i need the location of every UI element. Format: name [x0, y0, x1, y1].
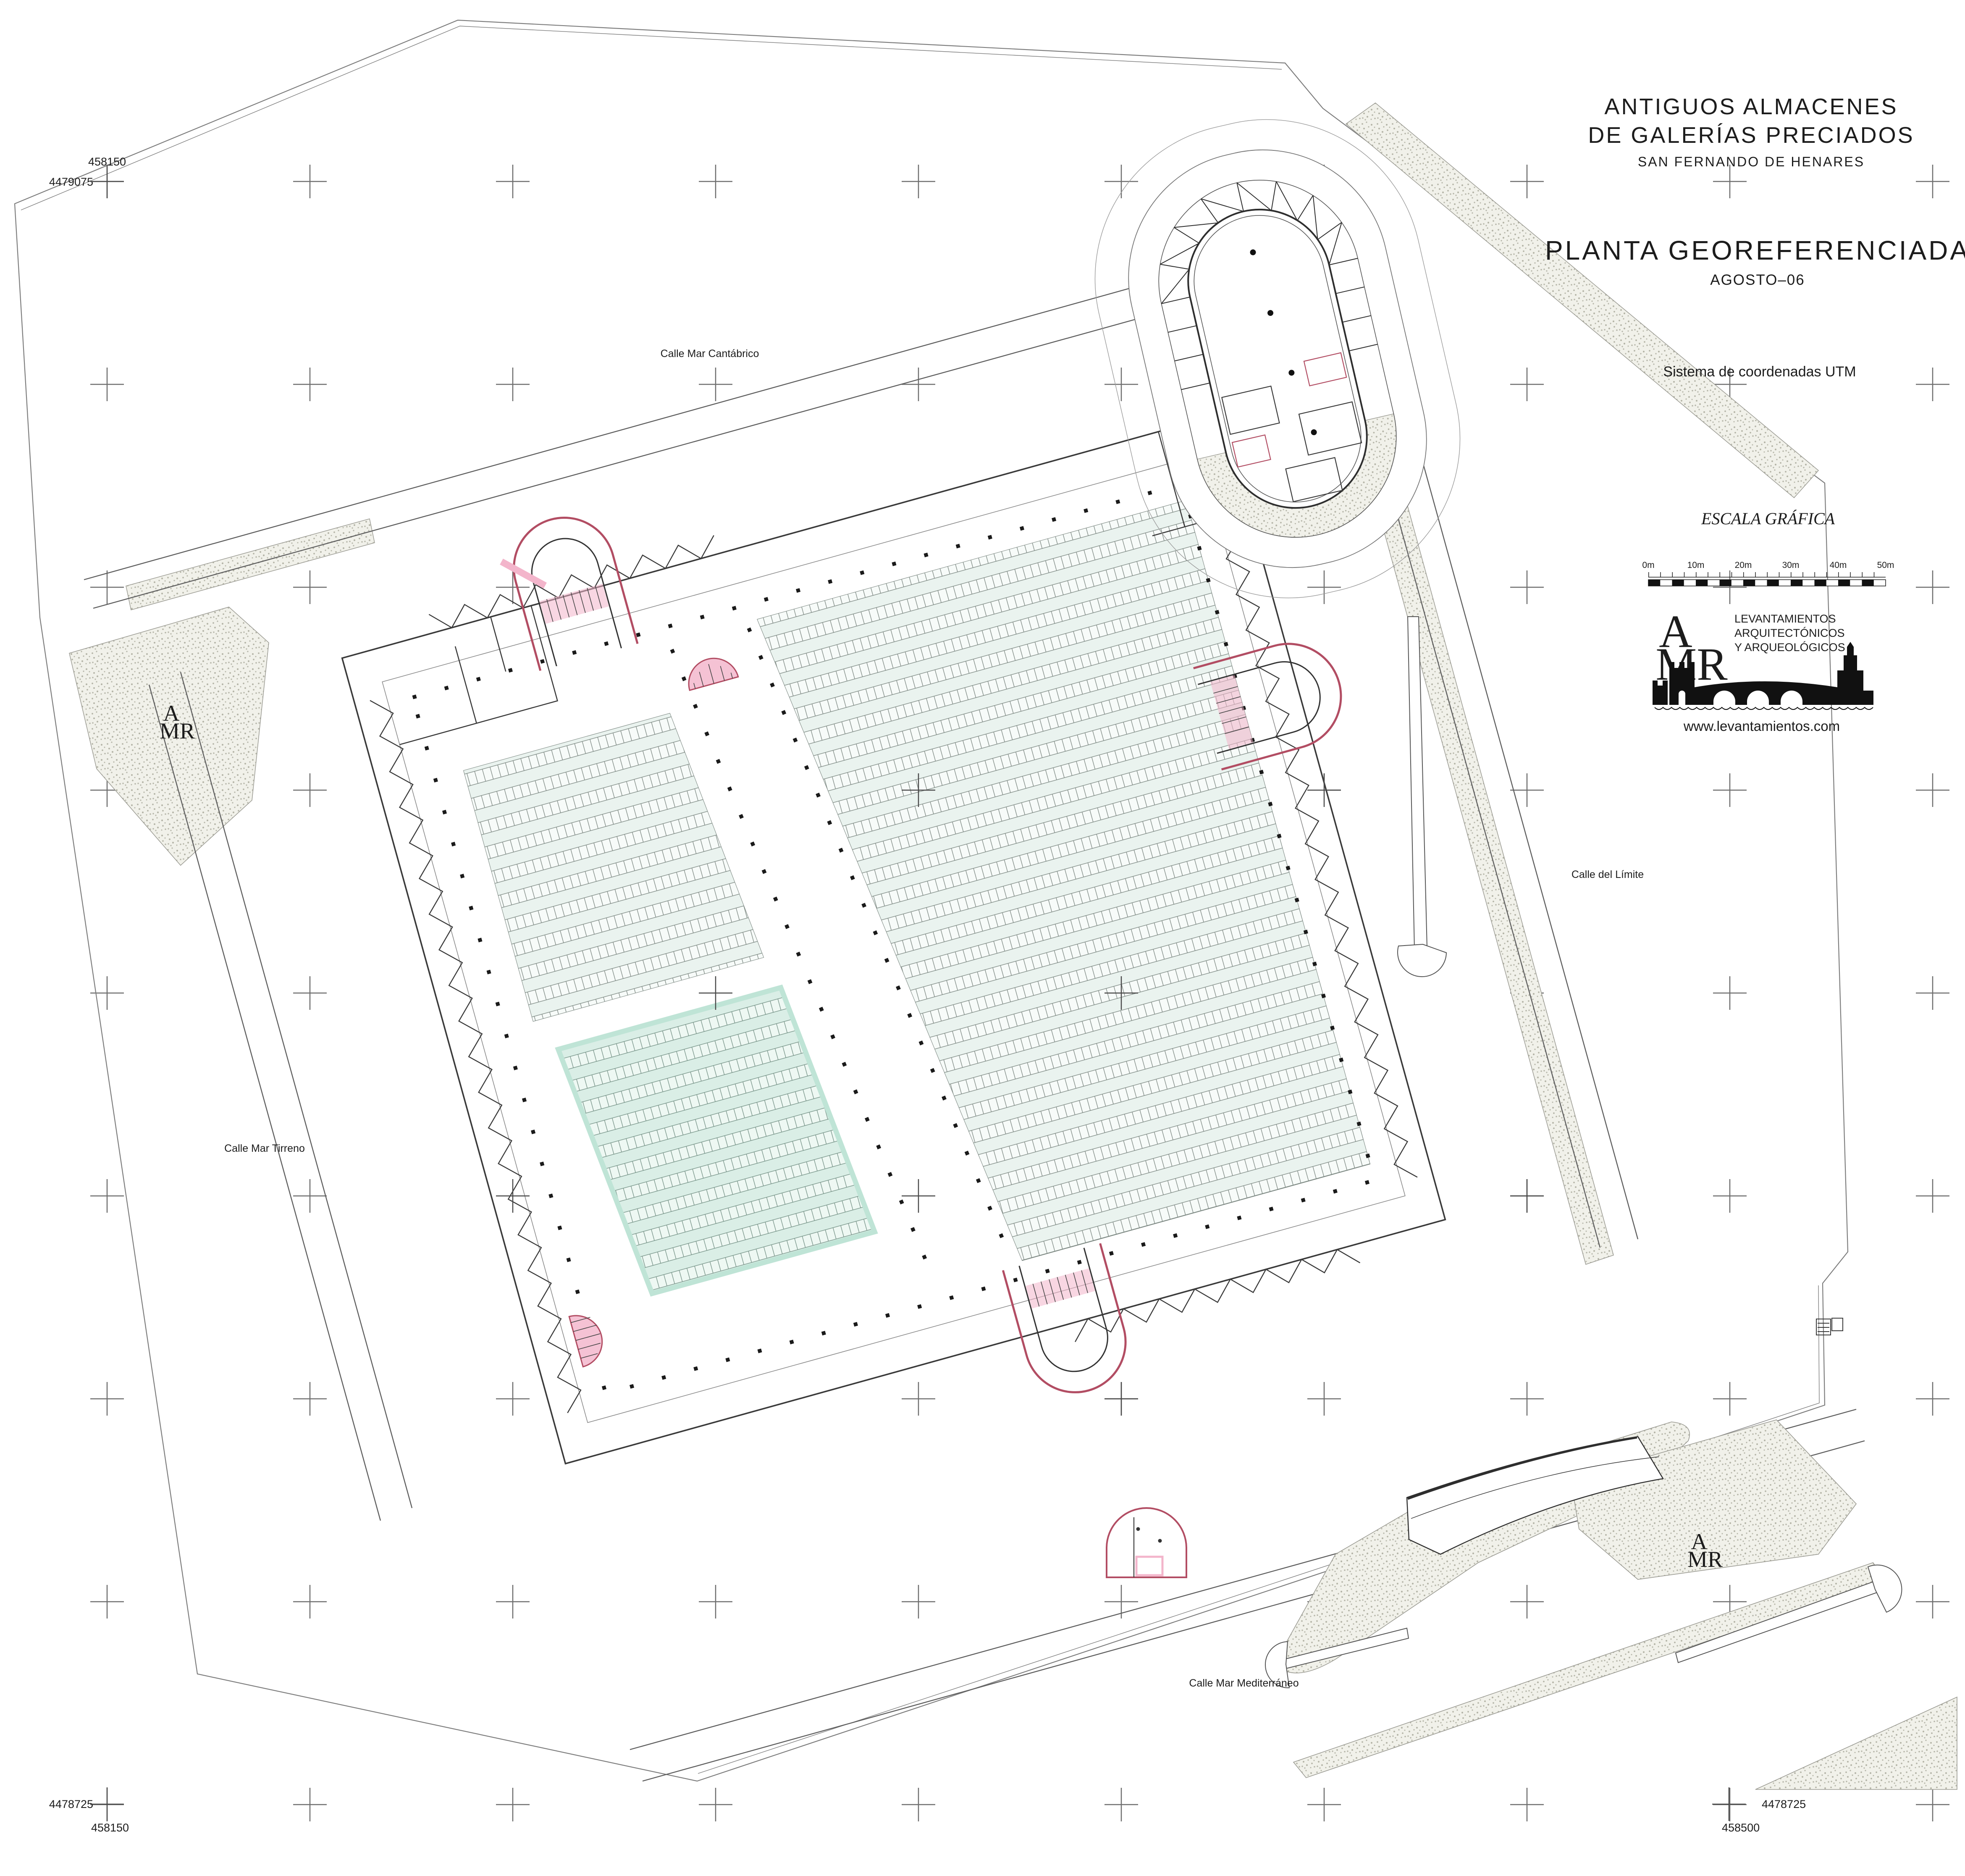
- plan-sheet: A MR A MR Calle Mar Cantábrico Calle Mar…: [0, 0, 1965, 1876]
- logo-website: www.levantamientos.com: [1683, 718, 1840, 734]
- logo-line2: ARQUITECTÓNICOS: [1734, 626, 1845, 639]
- street-label-north: Calle Mar Cantábrico: [661, 348, 759, 360]
- scale-tick-30: 30m: [1782, 560, 1800, 570]
- scale-ruler: [1648, 575, 1886, 577]
- street-label-east: Calle del Límite: [1571, 869, 1644, 880]
- street-label-west: Calle Mar Tirreno: [224, 1143, 305, 1154]
- site-plan-drawing: A MR A MR Calle Mar Cantábrico Calle Mar…: [0, 0, 1965, 1876]
- scale-tick-20: 20m: [1735, 560, 1752, 570]
- scale-tick-10: 10m: [1687, 560, 1705, 570]
- stamp-east-bottom: MR: [1687, 1547, 1723, 1572]
- scale-tick-50: 50m: [1877, 560, 1894, 570]
- logo-line3: Y ARQUEOLÓGICOS: [1734, 641, 1845, 654]
- utm-bl-easting: 458150: [91, 1821, 129, 1834]
- scale-tick-0: 0m: [1642, 560, 1654, 570]
- kiosk: [1107, 1508, 1186, 1577]
- scale-tick-40: 40m: [1830, 560, 1847, 570]
- street-label-south: Calle Mar Mediterráneo: [1189, 1677, 1299, 1689]
- utm-bl-northing: 4478725: [49, 1798, 93, 1810]
- scale-checker-bar: [1648, 580, 1886, 586]
- logo-text: LEVANTAMIENTOS ARQUITECTÓNICOS Y ARQUEOL…: [1734, 612, 1845, 654]
- utm-br-easting: 458500: [1722, 1821, 1760, 1834]
- sheet-title-line2: DE GALERÍAS PRECIADOS: [1588, 123, 1914, 148]
- drawing-date: AGOSTO–06: [1710, 272, 1805, 288]
- stamp-west-bottom: MR: [160, 718, 195, 744]
- drawing-title: PLANTA GEOREFERENCIADA: [1545, 235, 1965, 265]
- sheet-title-line1: ANTIGUOS ALMACENES: [1604, 94, 1898, 119]
- sheet-title-line3: SAN FERNANDO DE HENARES: [1638, 154, 1865, 169]
- utm-br-northing: 4478725: [1762, 1798, 1806, 1810]
- coordinate-system-note: Sistema de coordenadas UTM: [1663, 364, 1856, 380]
- utm-tl-northing: 4479075: [49, 176, 93, 188]
- logo-line1: LEVANTAMIENTOS: [1734, 612, 1836, 625]
- scale-title: ESCALA GRÁFICA: [1701, 509, 1835, 528]
